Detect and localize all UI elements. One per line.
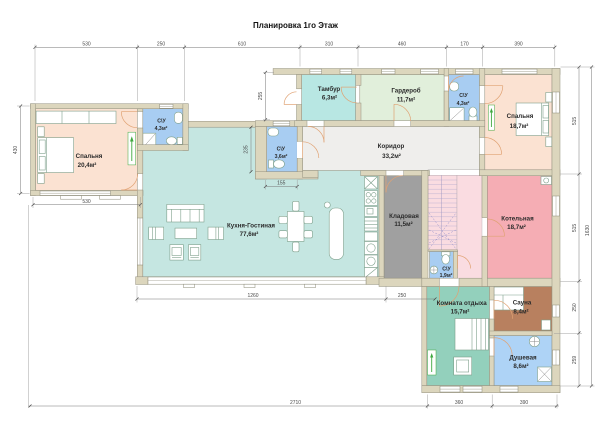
svg-text:8,6м²: 8,6м² xyxy=(513,363,528,370)
svg-text:18,7м²: 18,7м² xyxy=(507,224,526,231)
svg-text:390: 390 xyxy=(520,400,529,406)
svg-text:460: 460 xyxy=(398,42,407,48)
svg-text:Душевая: Душевая xyxy=(509,355,537,362)
svg-text:3,6м²: 3,6м² xyxy=(275,154,288,160)
svg-text:Тамбур: Тамбур xyxy=(318,86,341,93)
svg-text:11,7м²: 11,7м² xyxy=(397,97,415,104)
svg-text:1630: 1630 xyxy=(585,225,591,236)
svg-text:С\У: С\У xyxy=(157,118,166,124)
svg-text:77,6м²: 77,6м² xyxy=(240,231,259,238)
svg-text:515: 515 xyxy=(572,224,578,233)
svg-text:С\У: С\У xyxy=(277,146,286,152)
svg-text:1,9м²: 1,9м² xyxy=(440,273,453,279)
svg-text:4,3м²: 4,3м² xyxy=(457,101,470,107)
svg-text:310: 310 xyxy=(325,42,334,48)
svg-text:250: 250 xyxy=(398,293,407,299)
svg-text:259: 259 xyxy=(572,356,578,365)
svg-text:20,4м²: 20,4м² xyxy=(78,162,97,169)
svg-text:15,7м²: 15,7м² xyxy=(451,309,470,316)
svg-text:Планировка 1го Этаж: Планировка 1го Этаж xyxy=(253,21,338,30)
svg-text:Спальня: Спальня xyxy=(507,113,534,120)
svg-text:610: 610 xyxy=(238,42,247,48)
svg-text:255: 255 xyxy=(258,92,264,101)
svg-text:155: 155 xyxy=(277,181,286,187)
svg-text:250: 250 xyxy=(572,303,578,312)
svg-text:С\У: С\У xyxy=(442,267,451,273)
svg-text:33,2м²: 33,2м² xyxy=(382,153,401,160)
svg-text:530: 530 xyxy=(82,42,91,48)
svg-text:360: 360 xyxy=(455,400,464,406)
svg-text:11,5м²: 11,5м² xyxy=(394,221,412,228)
svg-text:С\У: С\У xyxy=(459,93,468,99)
svg-text:Коридор: Коридор xyxy=(378,143,405,150)
svg-text:235: 235 xyxy=(243,145,249,154)
svg-text:390: 390 xyxy=(514,42,523,48)
svg-text:Кухня-Гостиная: Кухня-Гостиная xyxy=(227,222,275,229)
svg-text:2710: 2710 xyxy=(290,400,301,406)
svg-text:18,7м²: 18,7м² xyxy=(510,123,529,130)
svg-text:8,4м²: 8,4м² xyxy=(513,309,528,316)
svg-text:1260: 1260 xyxy=(247,293,258,299)
svg-text:430: 430 xyxy=(13,146,19,155)
svg-text:Сауна: Сауна xyxy=(513,300,532,307)
svg-text:Спальня: Спальня xyxy=(76,153,103,160)
svg-text:4,3м²: 4,3м² xyxy=(155,126,168,132)
svg-text:170: 170 xyxy=(460,42,469,48)
svg-text:Гардероб: Гардероб xyxy=(391,88,420,95)
svg-text:Комната отдыха: Комната отдыха xyxy=(437,300,488,307)
svg-text:250: 250 xyxy=(157,42,166,48)
svg-text:Котельная: Котельная xyxy=(501,215,534,222)
svg-text:6,3м²: 6,3м² xyxy=(322,95,337,102)
svg-text:530: 530 xyxy=(82,199,91,205)
svg-text:515: 515 xyxy=(572,117,578,126)
svg-text:Кладовая: Кладовая xyxy=(389,213,419,220)
